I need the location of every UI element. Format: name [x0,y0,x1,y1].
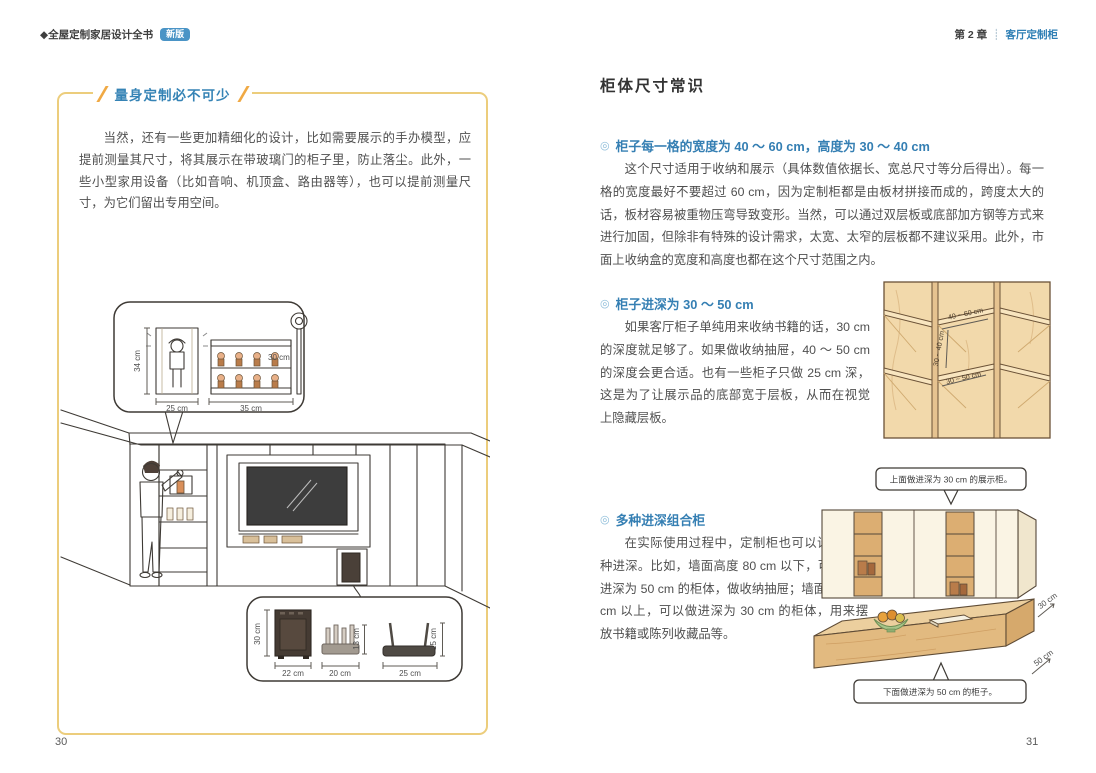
media-device [282,536,302,543]
dimension-label: 35 cm [240,404,262,413]
lower-console-cabinet [814,599,1034,668]
dimension-label: 25 cm [399,669,421,678]
section-title-3: ◎ 多种进深组合柜 [600,510,705,529]
callout-text: 下面做进深为 50 cm 的柜子。 [883,686,997,697]
top-depth-callout: 上面做进深为 30 cm 的展示柜。 [876,468,1026,504]
section-title-3-text: 多种进深组合柜 [616,510,706,529]
section-title-2-text: 柜子进深为 30 ～ 50 cm [616,294,754,313]
section-bullet-icon: ◎ [600,513,610,526]
dimension-label: 30 cm [268,353,290,362]
collectibles-callout: 34 cm 25 cm [114,302,307,443]
section-title-1: ◎ 柜子每一格的宽度为 40 ～ 60 cm，高度为 30 ～ 40 cm [600,136,930,155]
right-page-heading: 柜体尺寸常识 [600,74,705,96]
chapter-section-label: 客厅定制柜 [1006,27,1059,42]
open-shelf-column [854,512,882,596]
section-body-1: 这个尺寸适用于收纳和展示（具体数值依据长、宽总尺寸等分后得出）。每一格的宽度最好… [600,158,1044,272]
left-section-title: 量身定制必不可少 [93,81,252,107]
book-title: ◆全屋定制家居设计全书 [40,27,153,42]
section-title-2: ◎ 柜子进深为 30 ～ 50 cm [600,294,754,313]
bottom-depth-callout: 下面做进深为 50 cm 的柜子。 [854,663,1026,703]
page-number-left: 30 [55,736,67,748]
left-paragraph: 当然，还有一些更加精细化的设计，比如需要展示的手办模型，应提前测量其尺寸，将其展… [79,128,471,215]
media-device [264,536,277,543]
devices-callout: 30 cm 22 cm 13 cm 20 cm 15 cm [247,597,462,681]
running-head-left: ◆全屋定制家居设计全书 新版 [40,27,190,42]
edition-badge: 新版 [160,28,190,41]
tv-wall-unit [130,444,445,586]
dimension-label: 25 cm [166,404,188,413]
callout-text: 上面做进深为 30 cm 的展示柜。 [890,474,1013,485]
dimension-label: 15 cm [429,628,438,650]
chapter-label: 第 2 章 [954,27,987,42]
living-room-illustration: 34 cm 25 cm [59,294,490,684]
slash-icon [96,86,108,102]
dimension-label: 22 cm [282,669,304,678]
page-number-right: 31 [1026,736,1038,748]
open-shelf-column [946,512,974,596]
dimension-label: 30 cm [253,623,262,645]
cubby-cabinet-illustration: 40 ~ 60 cm 30 ~ 40 cm 30 ~ 50 cm [882,280,1052,440]
section-title-1-text: 柜子每一格的宽度为 40 ～ 60 cm，高度为 30 ～ 40 cm [616,136,930,155]
dimension-label: 20 cm [329,669,351,678]
section-bullet-icon: ◎ [600,139,610,152]
speaker-in-niche [342,553,360,582]
book-spread: { "header": { "book_title": "◆全屋定制家居设计全书… [0,0,1096,773]
dimension-label: 50 cm [1032,648,1055,668]
speaker [275,610,311,659]
media-device [243,536,259,543]
upper-display-cabinet [822,510,1036,598]
running-head-right: 第 2 章 ┊ 客厅定制柜 [954,27,1058,42]
combo-cabinet-illustration: 上面做进深为 30 cm 的展示柜。 30 cm [806,464,1070,714]
section-body-2: 如果客厅柜子单纯用来收纳书籍的话，30 cm 的深度就足够了。如果做收纳抽屉，4… [600,316,870,430]
slash-icon [237,86,249,102]
dimension-label: 13 cm [352,628,361,650]
left-section-title-text: 量身定制必不可少 [115,84,231,104]
dimension-label: 30 cm [1036,591,1059,611]
chapter-divider: ┊ [993,29,999,41]
man-figure [140,461,183,578]
section-bullet-icon: ◎ [600,297,610,310]
left-page-frame: 量身定制必不可少 当然，还有一些更加精细化的设计，比如需要展示的手办模型，应提前… [57,92,488,735]
dimension-label: 34 cm [133,350,142,372]
